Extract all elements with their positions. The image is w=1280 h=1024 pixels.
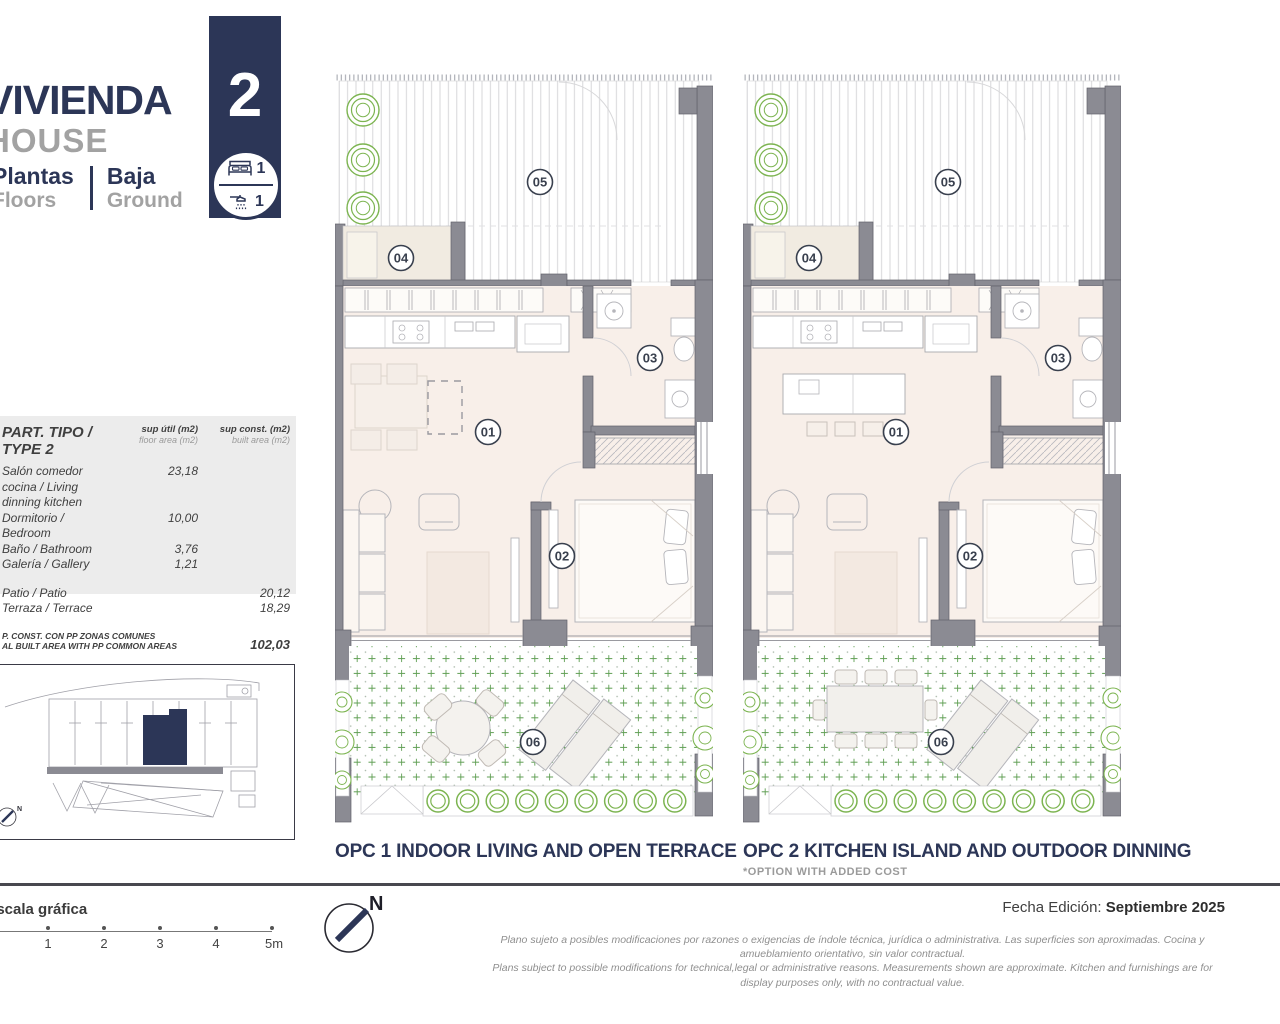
svg-text:02: 02	[555, 549, 569, 564]
footer-separator	[0, 883, 1280, 886]
total-label-line1: P. CONST. CON PP ZONAS COMUNES	[2, 631, 198, 642]
site-plan-drawing: N	[0, 665, 294, 839]
svg-text:03: 03	[1051, 351, 1065, 366]
caption-opc1: OPC 1 INDOOR LIVING AND OPEN TERRACE	[335, 841, 737, 863]
area-table: PART. TIPO / TYPE 2 sup útil (m2) floor …	[0, 416, 296, 594]
caption-opc2: OPC 2 KITCHEN ISLAND AND OUTDOOR DINNING	[743, 841, 1191, 863]
room-label-05: 05	[528, 170, 553, 195]
room-label-06: 06	[521, 730, 546, 755]
total-value: 102,03	[198, 637, 290, 652]
col2-subtitle: built area (m2)	[198, 435, 290, 446]
floors-label-en: Floors	[0, 189, 74, 212]
room-label-01: 01	[884, 420, 909, 445]
floorplan-opc1: 010203040506	[335, 74, 713, 832]
total-label-line2: AL BUILT AREA WITH PP COMMON AREAS	[2, 641, 198, 652]
room-label-03: 03	[1046, 346, 1071, 371]
bed-icon	[227, 160, 254, 177]
room-label-06: 06	[929, 730, 954, 755]
room-label-04: 04	[797, 246, 822, 271]
svg-text:05: 05	[941, 175, 955, 190]
svg-text:01: 01	[481, 425, 495, 440]
disclaimer-en: Plans subject to possible modifications …	[480, 961, 1225, 989]
svg-text:06: 06	[934, 735, 948, 750]
room-label-04: 04	[389, 246, 414, 271]
col2-title: sup const. (m2)	[220, 424, 290, 435]
floors-label-es: Plantas	[0, 164, 74, 189]
title-es: VIVIENDA	[0, 80, 172, 121]
caption-opc2-note: *OPTION WITH ADDED COST	[743, 866, 907, 878]
col1-subtitle: floor area (m2)	[114, 435, 198, 446]
table-row: Dormitorio / Bedroom 10,00	[0, 511, 296, 542]
table-row: Salón comedor cocina / Living dinning ki…	[0, 464, 296, 511]
svg-text:05: 05	[533, 175, 547, 190]
floorplan-opc2: 010203040506	[743, 74, 1121, 832]
edition-value: Septiembre 2025	[1106, 899, 1225, 916]
edition-label: Fecha Edición:	[1002, 899, 1101, 916]
bedrooms-count: 1	[257, 160, 266, 178]
svg-text:N: N	[17, 806, 22, 813]
svg-text:03: 03	[643, 351, 657, 366]
scale-tick: 3	[146, 936, 174, 951]
room-label-03: 03	[638, 346, 663, 371]
scale-tick: 4	[202, 936, 230, 951]
table-row: Galería / Gallery 1,21	[0, 557, 296, 573]
room-label-05: 05	[936, 170, 961, 195]
floors-block: Plantas Floors Baja Ground	[0, 164, 183, 212]
header-block: VIVIENDA HOUSE	[0, 80, 172, 157]
bathrooms-count: 1	[255, 193, 264, 211]
unit-badge: 1 1	[211, 150, 281, 220]
svg-text:06: 06	[526, 735, 540, 750]
table-row: Patio / Patio 20,12	[0, 586, 296, 602]
room-label-02: 02	[958, 544, 983, 569]
scale-tick: 1	[34, 936, 62, 951]
north-label: N	[369, 893, 383, 916]
svg-text:04: 04	[394, 251, 409, 266]
scale-tick: 5m	[260, 936, 288, 951]
svg-text:02: 02	[963, 549, 977, 564]
floors-value-es: Baja	[107, 164, 183, 189]
shower-icon	[228, 193, 252, 211]
floors-divider	[90, 166, 93, 210]
scale-label: escala gráfica	[0, 901, 87, 918]
north-arrow	[320, 896, 400, 960]
table-row: Terraza / Terrace 18,29	[0, 601, 296, 617]
scale-bar	[0, 931, 272, 932]
scale-tick: 2	[90, 936, 118, 951]
disclaimer: Plano sujeto a posibles modificaciones p…	[480, 933, 1225, 990]
svg-text:01: 01	[889, 425, 903, 440]
floors-value-en: Ground	[107, 189, 183, 212]
site-plan: N	[0, 664, 295, 840]
disclaimer-es: Plano sujeto a posibles modificaciones p…	[480, 933, 1225, 961]
title-en: HOUSE	[0, 124, 172, 157]
svg-text:04: 04	[802, 251, 817, 266]
col1-title: sup útil (m2)	[142, 424, 198, 435]
room-label-01: 01	[476, 420, 501, 445]
unit-number: 2	[209, 60, 281, 131]
table-row: Baño / Bathroom 3,76	[0, 542, 296, 558]
room-label-02: 02	[550, 544, 575, 569]
table-total-row: P. CONST. CON PP ZONAS COMUNES AL BUILT …	[0, 629, 296, 652]
area-table-title: PART. TIPO / TYPE 2	[2, 424, 114, 458]
edition-block: Fecha Edición: Septiembre 2025	[900, 899, 1225, 916]
